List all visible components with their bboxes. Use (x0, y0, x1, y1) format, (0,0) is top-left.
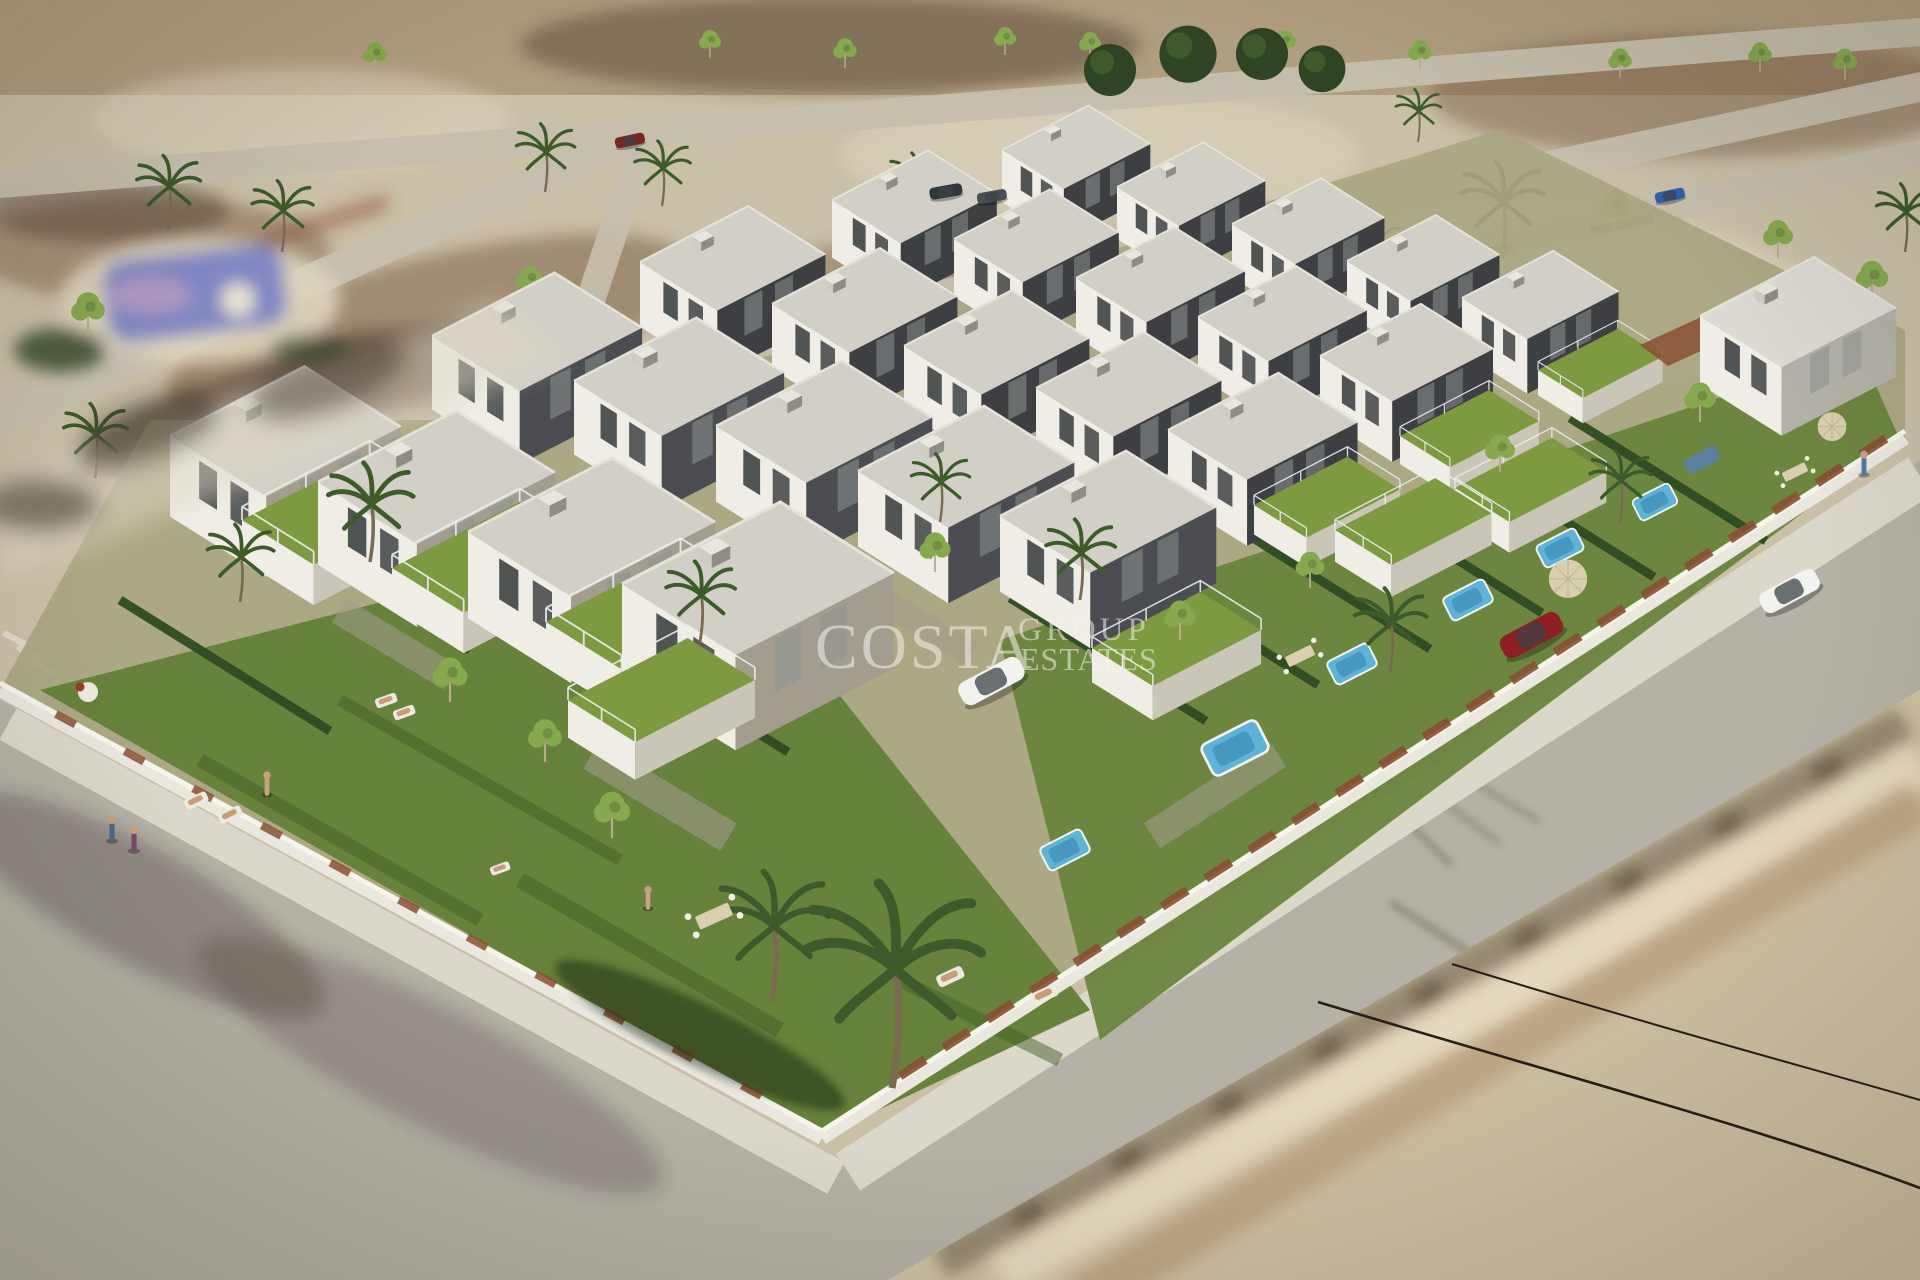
aerial-render-scene: COSTA GROUP ESTATES (0, 0, 1920, 1280)
watermark: COSTA GROUP ESTATES (815, 611, 1158, 682)
watermark-word-estates: ESTATES (1020, 641, 1158, 677)
render-canvas: COSTA GROUP ESTATES (0, 0, 1920, 1280)
watermark-brand: COSTA (815, 611, 1035, 682)
